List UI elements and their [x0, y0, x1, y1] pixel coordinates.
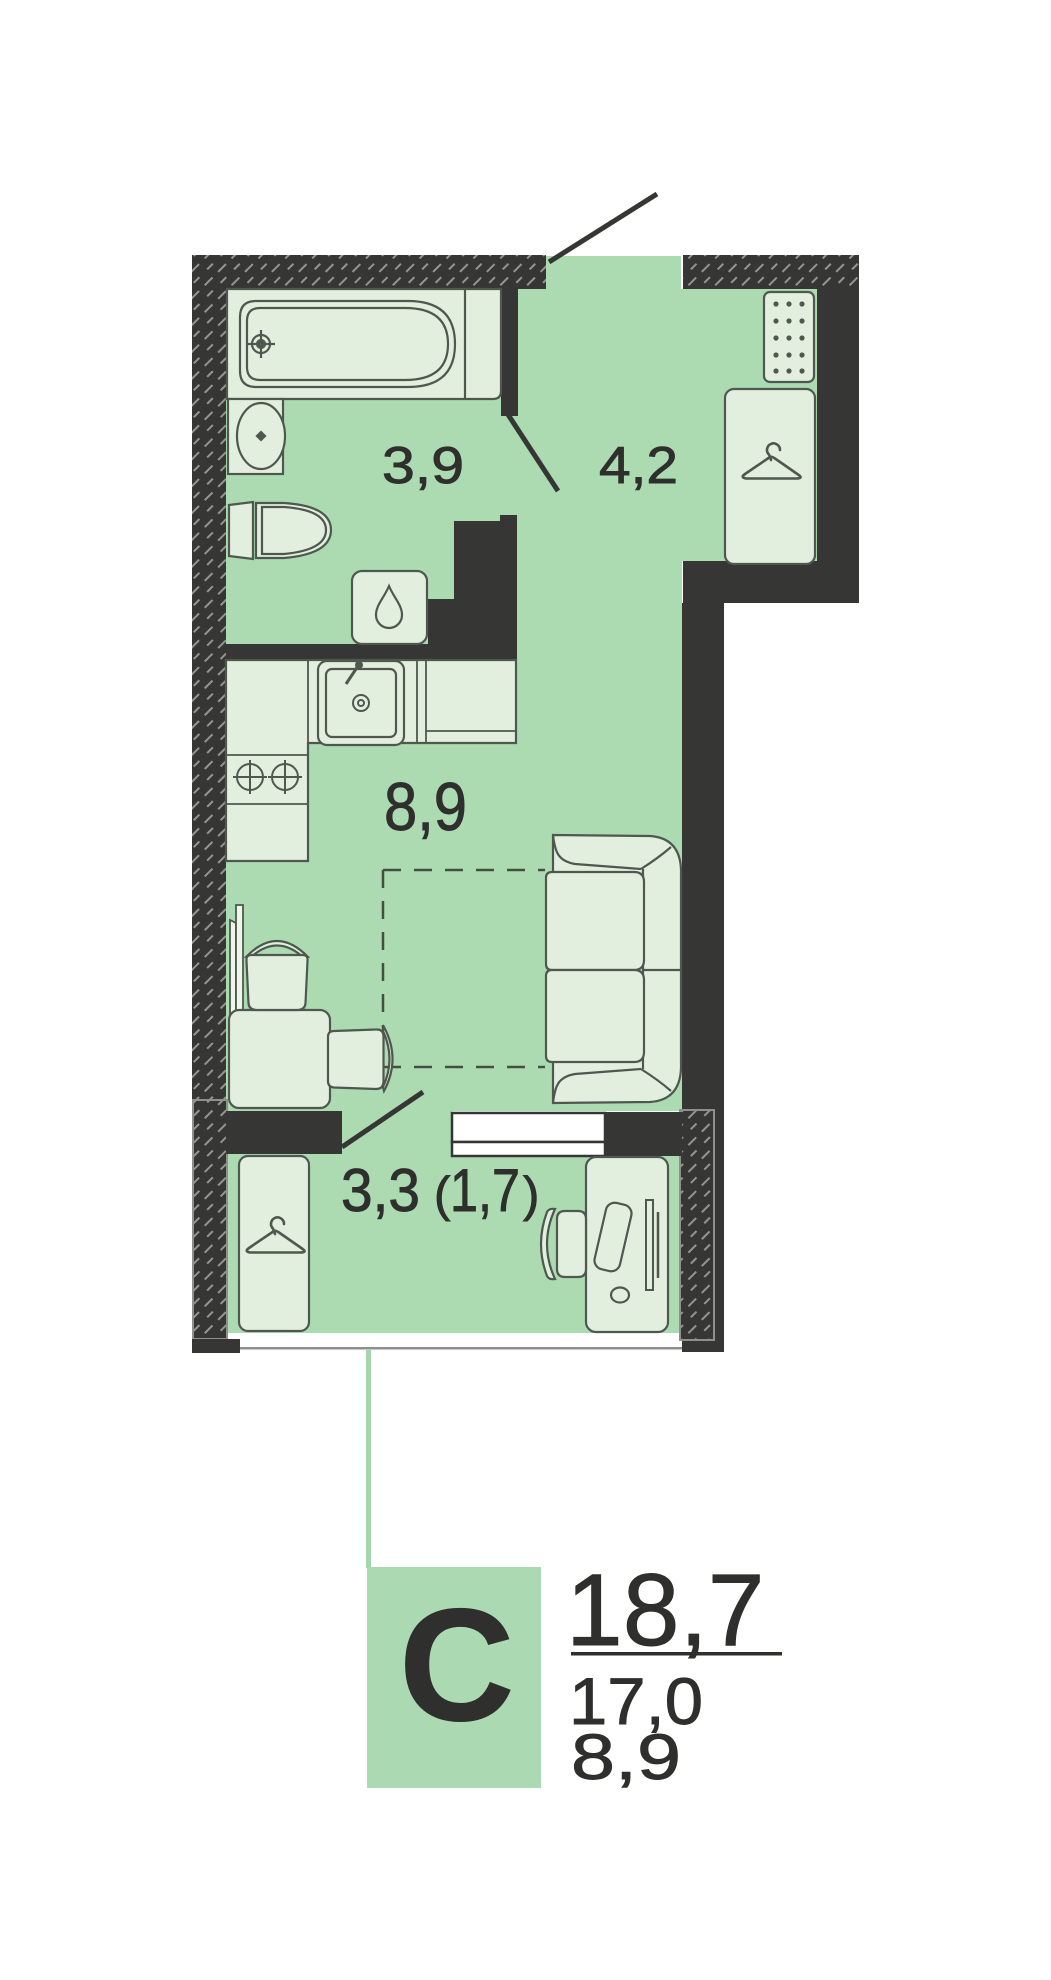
svg-text:8,9: 8,9 — [571, 1721, 681, 1793]
svg-text:): ) — [523, 1168, 539, 1222]
svg-text:3,9: 3,9 — [382, 437, 464, 495]
svg-text:1,7: 1,7 — [450, 1157, 520, 1224]
svg-text:3,3: 3,3 — [341, 1157, 420, 1224]
svg-text:4,2: 4,2 — [599, 437, 678, 495]
svg-text:С: С — [399, 1575, 515, 1754]
svg-text:18,7: 18,7 — [566, 1553, 765, 1667]
svg-text:(: ( — [434, 1168, 451, 1222]
svg-text:8,9: 8,9 — [384, 769, 467, 845]
